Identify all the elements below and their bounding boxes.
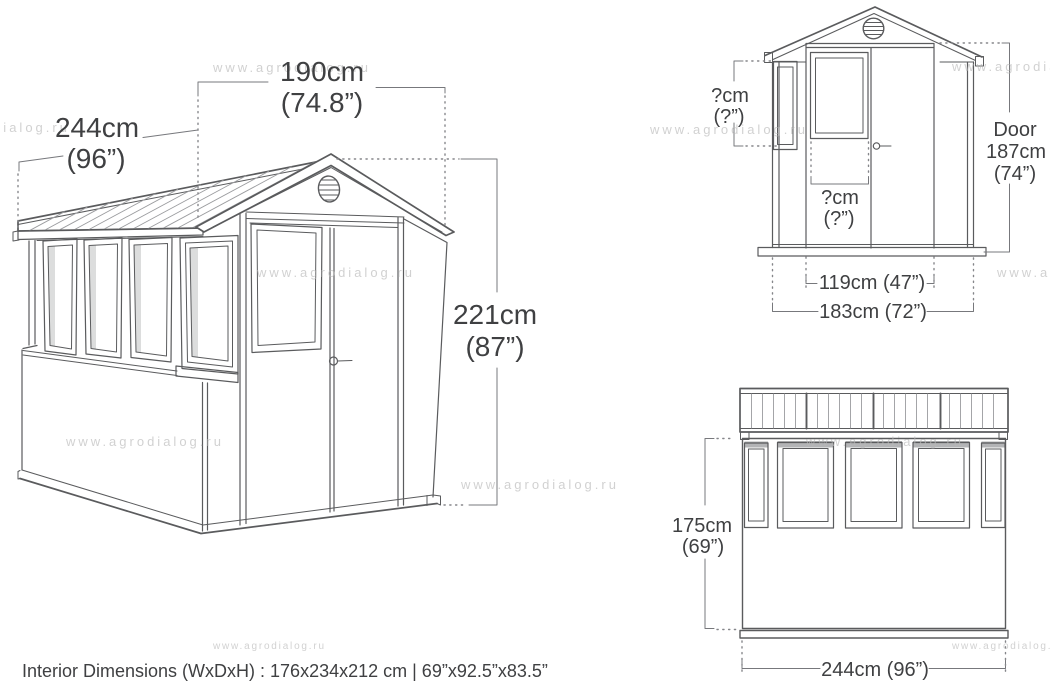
perspective-depth-cm: 244cm [55,114,139,142]
side-view-drawing [705,389,1008,674]
front-door-height-inch: (74”) [994,164,1036,184]
interior-dimensions-caption: Interior Dimensions (WxDxH) : 176x234x21… [22,661,548,682]
side-overall-width-label: 244cm (96”) [821,660,929,680]
side-wall-height-inch: (69”) [682,537,724,557]
perspective-width-cm: 190cm [280,58,364,86]
watermark-text: www.agrodialog.ru [997,266,1050,279]
watermark-text: www.agrodialog.ru [257,266,415,279]
watermark-text: www.agrodialog.ru [806,435,964,448]
perspective-height-cm: 221cm [453,301,537,329]
front-side-window-height-inch: (?”) [713,107,744,127]
watermark-text: www.agrodialog.ru [213,642,326,652]
front-door-width-label: 119cm (47”) [819,273,925,293]
perspective-height-inch: (87”) [465,333,524,361]
dimension-diagram-page: 244cm (96”) 190cm (74.8”) 221cm (87”) ?c… [0,0,1050,690]
front-door-label: Door [993,120,1036,140]
front-door-window-width-cm: ?cm [821,188,859,208]
watermark-text: www.agrodialog.ru [952,642,1050,652]
front-door-height-cm: 187cm [986,142,1046,162]
front-door-window-width-inch: (?”) [823,209,854,229]
watermark-text: www.agrodialog.ru [66,435,224,448]
front-view-drawing [734,7,1010,312]
perspective-width-inch: (74.8”) [281,89,363,117]
watermark-text: www.agrodialog.ru [952,60,1050,73]
diagram-linework [0,0,1050,690]
perspective-depth-inch: (96”) [66,145,125,173]
watermark-text: www.agrodialog.ru [461,478,619,491]
front-overall-width-label: 183cm (72”) [819,302,927,322]
front-side-window-height-cm: ?cm [711,86,749,106]
side-wall-height-cm: 175cm [672,516,732,536]
